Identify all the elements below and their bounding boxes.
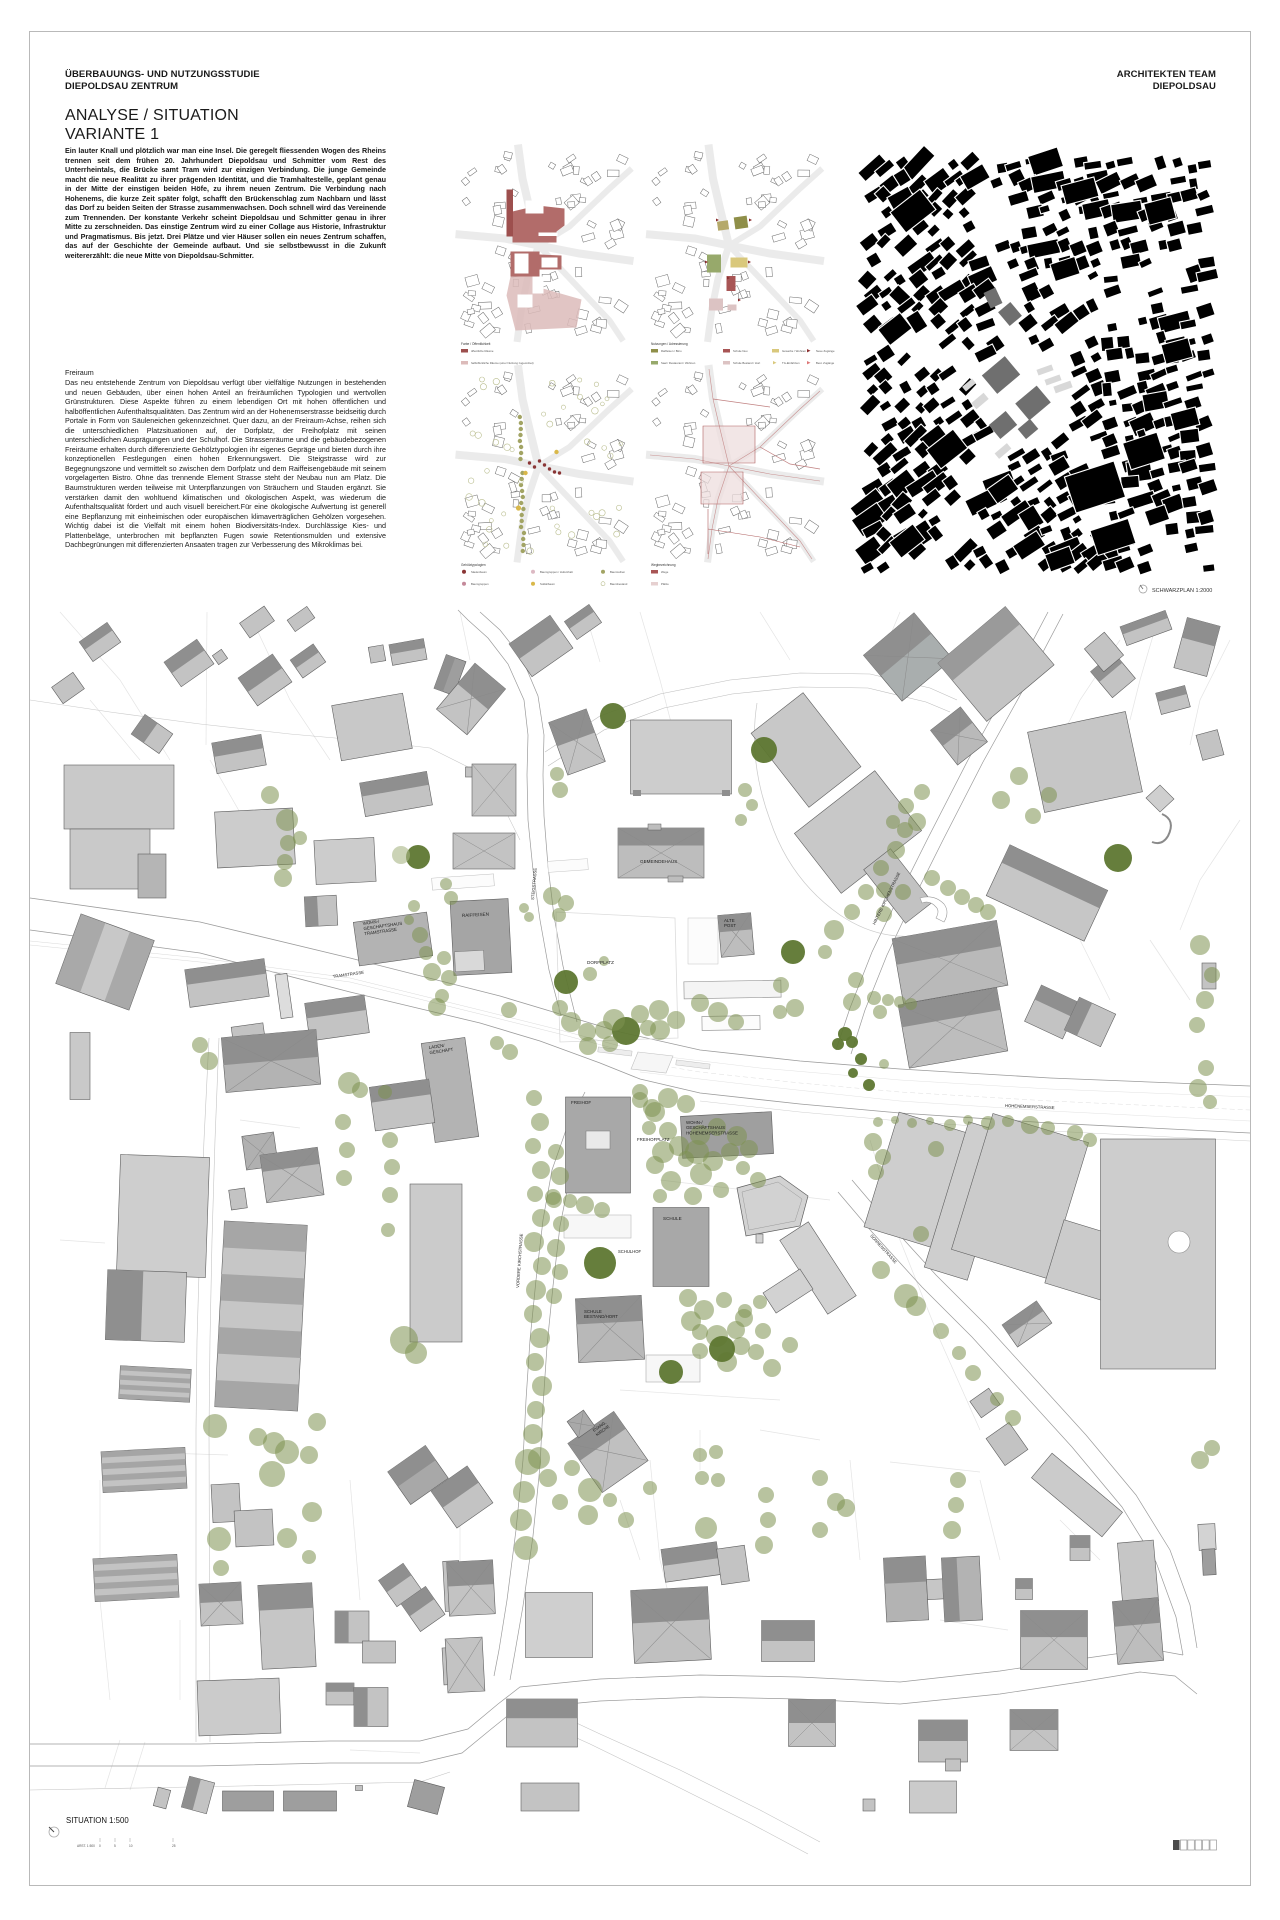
svg-text:VORDERE KIRCHSTRASSE: VORDERE KIRCHSTRASSE [515, 1233, 524, 1288]
svg-text:ALTEPOST: ALTEPOST [724, 918, 736, 928]
svg-text:FREIHOF: FREIHOF [571, 1100, 591, 1105]
svg-text:FREIHOFPLATZ: FREIHOFPLATZ [637, 1137, 670, 1142]
svg-text:Baumgruppen: Baumgruppen [471, 582, 489, 586]
svg-text:Saal / Restaurant / Wohnen: Saal / Restaurant / Wohnen [661, 361, 696, 365]
svg-text:Raiffeisen / Büro: Raiffeisen / Büro [661, 349, 682, 353]
svg-text:Best. Zugänge: Best. Zugänge [816, 361, 835, 365]
svg-text:SCHULHOF: SCHULHOF [618, 1249, 641, 1254]
svg-text:Schule Neu: Schule Neu [733, 349, 748, 353]
svg-text:GEMEINDEHAUS: GEMEINDEHAUS [640, 859, 677, 864]
svg-text:halböffentliche Räume (einer N: halböffentliche Räume (einer Nutzung zug… [471, 361, 534, 365]
svg-text:Gehölztypologien: Gehölztypologien [461, 563, 486, 567]
svg-text:SITUATION 1:500: SITUATION 1:500 [66, 1816, 129, 1825]
svg-text:Baumreihen: Baumreihen [610, 570, 626, 574]
svg-text:TRAMSTRASSE: TRAMSTRASSE [332, 970, 364, 979]
svg-text:Schule Bestand / Hort: Schule Bestand / Hort [733, 361, 760, 365]
svg-text:SCHWARZPLAN 1:2000: SCHWARZPLAN 1:2000 [1152, 588, 1212, 594]
svg-text:SONNENSTRASSE: SONNENSTRASSE [869, 1233, 898, 1264]
svg-text:Neue Zugänge: Neue Zugänge [816, 349, 835, 353]
svg-text:DORFPLATZ: DORFPLATZ [587, 960, 614, 965]
svg-text:0: 0 [99, 1844, 101, 1848]
svg-text:ARST. 1:500: ARST. 1:500 [77, 1844, 95, 1848]
svg-text:Baumgruppen / Hufenthalt: Baumgruppen / Hufenthalt [540, 570, 573, 574]
svg-text:5: 5 [114, 1844, 116, 1848]
svg-text:HOHENEMSERSTRASSE: HOHENEMSERSTRASSE [1005, 1103, 1055, 1110]
svg-text:Wegbezeichnung: Wegbezeichnung [651, 563, 676, 567]
svg-text:öffentliche Räume: öffentliche Räume [471, 349, 494, 353]
svg-text:Nutzungen / Adressierung: Nutzungen / Adressierung [651, 342, 688, 346]
svg-text:10: 10 [129, 1844, 133, 1848]
svg-text:Solitärbaum: Solitärbaum [540, 582, 556, 586]
svg-text:25: 25 [172, 1844, 176, 1848]
svg-text:Farbe / Öffentlichkeit: Farbe / Öffentlichkeit [461, 342, 490, 346]
svg-text:Plätze: Plätze [661, 582, 669, 586]
svg-text:TG-Einfahrten: TG-Einfahrten [782, 361, 800, 365]
svg-text:Säulenbaum: Säulenbaum [471, 570, 487, 574]
svg-text:SCHULE: SCHULE [663, 1216, 682, 1221]
svg-text:Baumbestand: Baumbestand [610, 582, 628, 586]
svg-text:Gewerbe / Wohnen: Gewerbe / Wohnen [782, 349, 806, 353]
svg-text:Wege: Wege [661, 570, 669, 574]
